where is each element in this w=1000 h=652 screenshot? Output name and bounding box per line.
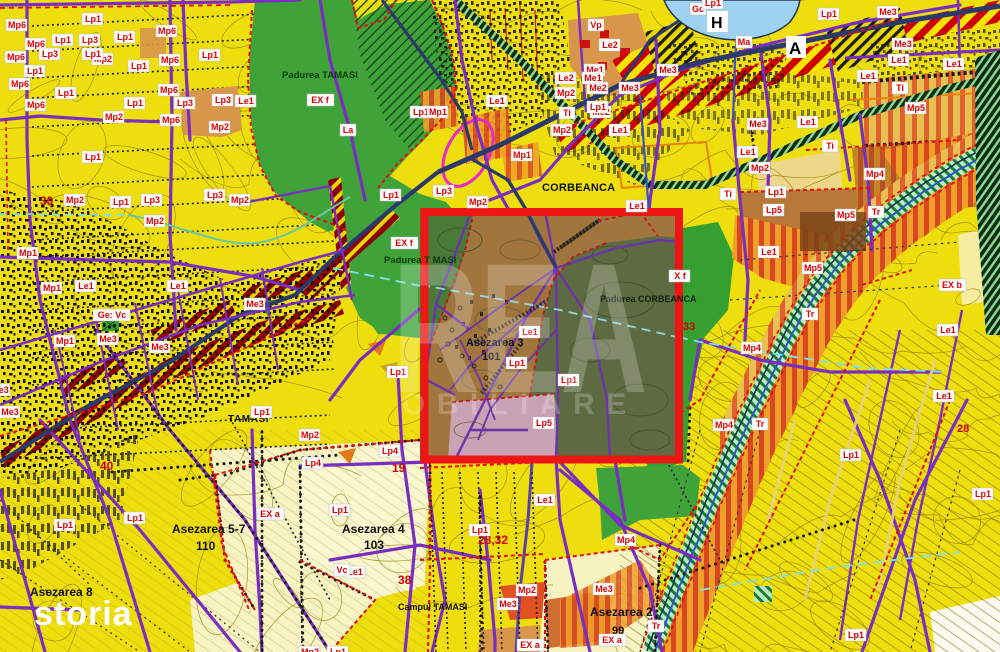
svg-text:Asezarea 4: Asezarea 4: [342, 522, 405, 536]
svg-text:Lp1: Lp1: [131, 61, 147, 71]
svg-text:Me3: Me3: [246, 299, 264, 309]
svg-text:Lp5: Lp5: [766, 205, 782, 215]
svg-text:EX a: EX a: [520, 640, 541, 650]
svg-text:Me3: Me3: [1, 407, 19, 417]
svg-text:Mp2: Mp2: [66, 195, 84, 205]
svg-text:Lp1: Lp1: [85, 14, 101, 24]
svg-text:Lp1: Lp1: [383, 190, 399, 200]
svg-text:Vp: Vp: [590, 20, 602, 30]
svg-text:Me3: Me3: [659, 65, 677, 75]
svg-text:Le1: Le1: [537, 495, 553, 505]
svg-text:Lp1: Lp1: [848, 630, 864, 640]
svg-text:Le1: Le1: [891, 55, 907, 65]
svg-text:Me3: Me3: [0, 385, 9, 395]
svg-text:Me3: Me3: [499, 599, 517, 609]
svg-text:Me3: Me3: [99, 334, 117, 344]
svg-text:Mp2: Mp2: [557, 88, 575, 98]
svg-text:CORBEANCA: CORBEANCA: [542, 182, 615, 194]
svg-text:Lp1: Lp1: [57, 520, 73, 530]
svg-text:Mp6: Mp6: [7, 52, 25, 62]
svg-text:Ti: Ti: [826, 141, 834, 151]
svg-text:Lp1: Lp1: [254, 407, 270, 417]
svg-text:Mp2: Mp2: [211, 122, 229, 132]
svg-text:19: 19: [392, 461, 406, 475]
svg-text:Me3: Me3: [621, 83, 639, 93]
svg-text:Lp1: Lp1: [27, 66, 43, 76]
svg-text:Lp1: Lp1: [58, 88, 74, 98]
svg-text:Mp2: Mp2: [751, 163, 769, 173]
svg-text:Mp2: Mp2: [301, 647, 319, 652]
svg-text:Le1: Le1: [629, 201, 645, 211]
svg-text:Le1: Le1: [612, 125, 628, 135]
svg-text:Ti: Ti: [896, 83, 904, 93]
svg-text:Me3: Me3: [894, 39, 912, 49]
svg-text:Tr: Tr: [872, 207, 881, 217]
svg-text:Lp1: Lp1: [202, 50, 218, 60]
svg-text:Lp1: Lp1: [113, 197, 129, 207]
svg-text:Lp3: Lp3: [436, 186, 452, 196]
svg-text:Ti: Ti: [724, 189, 732, 199]
svg-text:Mp6: Mp6: [11, 79, 29, 89]
svg-text:Mp1: Mp1: [429, 107, 447, 117]
svg-text:Mp6: Mp6: [158, 26, 176, 36]
svg-text:Le1: Le1: [936, 391, 952, 401]
svg-text:Padurea TAMASI: Padurea TAMASI: [282, 70, 358, 81]
svg-text:Lp4: Lp4: [305, 458, 321, 468]
svg-text:Asezarea 2: Asezarea 2: [590, 605, 653, 619]
svg-text:Lp1: Lp1: [472, 525, 488, 535]
svg-text:Lp3: Lp3: [144, 195, 160, 205]
svg-text:Vc: Vc: [336, 565, 347, 575]
svg-text:33: 33: [683, 321, 695, 333]
svg-text:Mp6: Mp6: [8, 20, 26, 30]
svg-text:Mp6: Mp6: [162, 115, 180, 125]
svg-text:Mp6: Mp6: [161, 55, 179, 65]
svg-text:Ma: Ma: [738, 37, 751, 47]
svg-text:Mp2: Mp2: [553, 125, 571, 135]
svg-text:Lp1: Lp1: [975, 489, 991, 499]
svg-text:Mp4: Mp4: [715, 420, 733, 430]
svg-text:Lp1: Lp1: [127, 513, 143, 523]
svg-text:Lp3: Lp3: [177, 98, 193, 108]
svg-text:Mp2: Mp2: [146, 216, 164, 226]
svg-text:Me3: Me3: [595, 584, 613, 594]
svg-text:Lp3: Lp3: [42, 49, 58, 59]
svg-text:Le2: Le2: [602, 40, 618, 50]
svg-text:Lp3: Lp3: [82, 35, 98, 45]
svg-text:Mp1: Mp1: [56, 336, 74, 346]
svg-text:Me3: Me3: [879, 7, 897, 17]
svg-text:Lp1: Lp1: [332, 505, 348, 515]
svg-text:Mp2: Mp2: [105, 112, 123, 122]
svg-text:103: 103: [364, 538, 384, 552]
svg-text:Ti: Ti: [563, 108, 571, 118]
svg-text:28: 28: [957, 423, 969, 435]
svg-text:Le1: Le1: [940, 325, 956, 335]
svg-text:Mp4: Mp4: [617, 535, 635, 545]
svg-text:Lp1: Lp1: [705, 0, 721, 8]
svg-text:Mp2: Mp2: [469, 197, 487, 207]
svg-text:Le1: Le1: [170, 281, 186, 291]
svg-text:Lp3: Lp3: [215, 95, 231, 105]
svg-text:Me3: Me3: [151, 342, 169, 352]
svg-text:38: 38: [398, 573, 412, 587]
svg-text:Mp1: Mp1: [43, 283, 61, 293]
svg-text:OBILIARE: OBILIARE: [402, 388, 638, 421]
svg-text:40: 40: [100, 459, 114, 473]
svg-text:Lp1: Lp1: [330, 647, 346, 652]
svg-text:Le1: Le1: [238, 96, 254, 106]
svg-text:Mp4: Mp4: [866, 169, 884, 179]
svg-text:Lp1: Lp1: [590, 102, 606, 112]
svg-text:X f: X f: [674, 271, 687, 281]
svg-text:Mp2: Mp2: [518, 585, 536, 595]
svg-text:Tr: Tr: [756, 419, 765, 429]
svg-text:Le1: Le1: [860, 71, 876, 81]
svg-text:Tr: Tr: [652, 621, 661, 631]
svg-text:110: 110: [196, 539, 216, 553]
svg-text:Lp1: Lp1: [85, 152, 101, 162]
svg-text:Mp5: Mp5: [837, 210, 855, 220]
svg-text:Lp3: Lp3: [207, 190, 223, 200]
svg-text:Le1: Le1: [800, 117, 816, 127]
svg-text:Lp4: Lp4: [382, 446, 398, 456]
svg-text:EX f: EX f: [311, 95, 330, 105]
svg-text:Lp1: Lp1: [127, 98, 143, 108]
svg-text:Lp1: Lp1: [413, 107, 429, 117]
svg-text:Campul TAMASI: Campul TAMASI: [398, 602, 467, 612]
svg-text:Me3: Me3: [749, 119, 767, 129]
svg-text:Mp6: Mp6: [160, 85, 178, 95]
svg-text:Le1: Le1: [946, 59, 962, 69]
svg-text:Mp1: Mp1: [513, 150, 531, 160]
svg-text:EX a: EX a: [260, 509, 281, 519]
svg-text:Mp5: Mp5: [804, 263, 822, 273]
svg-text:H: H: [711, 15, 723, 32]
svg-text:Mp1: Mp1: [19, 248, 37, 258]
svg-text:A: A: [789, 39, 801, 58]
svg-text:Le1: Le1: [761, 247, 777, 257]
svg-text:Mp6: Mp6: [27, 39, 45, 49]
svg-text:Mp2: Mp2: [231, 195, 249, 205]
svg-text:Lp1: Lp1: [768, 187, 784, 197]
svg-text:Le1: Le1: [489, 96, 505, 106]
svg-text:Mp2: Mp2: [301, 430, 319, 440]
svg-text:Asezarea 5-7: Asezarea 5-7: [172, 522, 246, 536]
svg-text:Lp1: Lp1: [843, 450, 859, 460]
svg-text:Le1: Le1: [740, 147, 756, 157]
svg-text:Mp4: Mp4: [743, 343, 761, 353]
svg-text:EX a: EX a: [602, 635, 623, 645]
svg-text:Mp6: Mp6: [27, 100, 45, 110]
svg-text:Le1: Le1: [78, 281, 94, 291]
svg-text:Mp5: Mp5: [907, 103, 925, 113]
svg-text:Lp1: Lp1: [117, 32, 133, 42]
svg-text:Lp1: Lp1: [85, 49, 101, 59]
svg-text:Ge: Vc: Ge: Vc: [98, 310, 127, 320]
svg-text:storia: storia: [34, 595, 133, 633]
svg-text:Me1: Me1: [584, 73, 602, 83]
svg-text:Lp1: Lp1: [821, 9, 837, 19]
svg-text:Me2: Me2: [589, 83, 607, 93]
svg-text:La: La: [343, 125, 354, 135]
svg-text:Tr: Tr: [806, 309, 815, 319]
svg-text:Lp1: Lp1: [55, 35, 71, 45]
svg-text:EX b: EX b: [942, 280, 963, 290]
svg-text:30: 30: [40, 194, 54, 208]
svg-text:Le2: Le2: [558, 73, 574, 83]
